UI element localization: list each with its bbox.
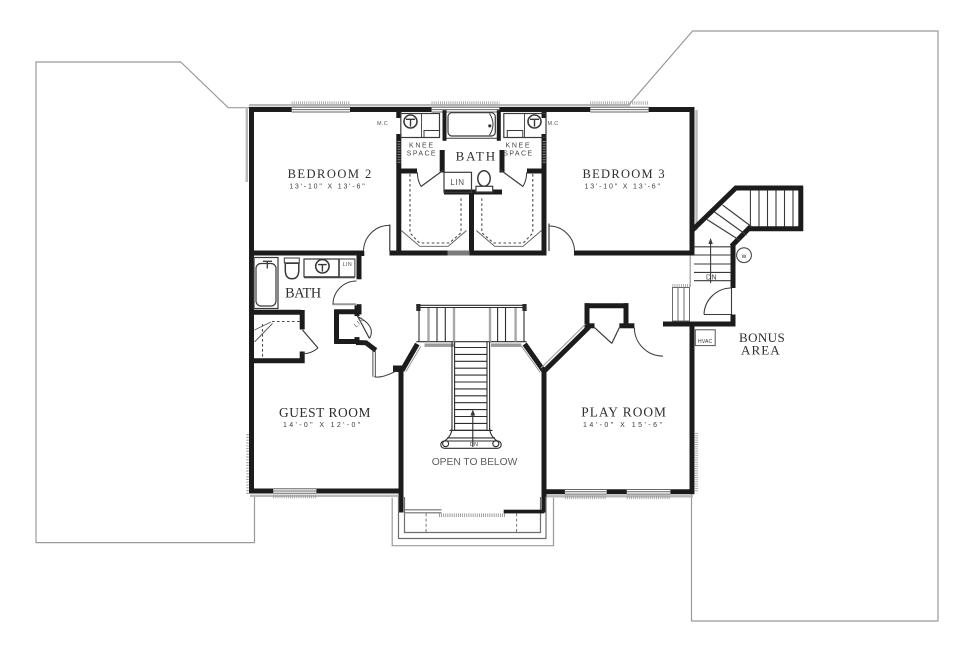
svg-text:BATH: BATH	[285, 285, 321, 301]
svg-text:14'-0" X 15'-6": 14'-0" X 15'-6"	[583, 422, 663, 429]
svg-text:SPACE: SPACE	[407, 150, 436, 157]
svg-text:OPEN TO BELOW: OPEN TO BELOW	[432, 457, 518, 468]
svg-text:BATH: BATH	[456, 149, 496, 164]
svg-text:BEDROOM 3: BEDROOM 3	[583, 167, 665, 181]
svg-text:13'-10" X 13'-6": 13'-10" X 13'-6"	[585, 184, 661, 191]
svg-text:KNEE: KNEE	[506, 143, 530, 150]
svg-text:AREA: AREA	[741, 343, 780, 358]
svg-text:GUEST ROOM: GUEST ROOM	[279, 405, 370, 420]
svg-text:BEDROOM 2: BEDROOM 2	[288, 167, 372, 181]
svg-text:HVAC: HVAC	[698, 339, 713, 345]
svg-text:PLAY ROOM: PLAY ROOM	[581, 404, 666, 419]
svg-text:LIN: LIN	[450, 178, 464, 187]
svg-text:SPACE: SPACE	[503, 150, 532, 157]
svg-text:w: w	[741, 253, 747, 260]
svg-text:DN: DN	[470, 442, 478, 448]
svg-text:13'-10" X 13'-6": 13'-10" X 13'-6"	[289, 184, 365, 191]
svg-text:14'-0" X 12'-0": 14'-0" X 12'-0"	[283, 422, 361, 429]
svg-text:M.C: M.C	[548, 121, 559, 127]
svg-text:DN: DN	[706, 275, 717, 282]
svg-text:LIN: LIN	[343, 262, 352, 268]
svg-text:KNEE: KNEE	[409, 143, 433, 150]
svg-text:M.C: M.C	[377, 121, 388, 127]
